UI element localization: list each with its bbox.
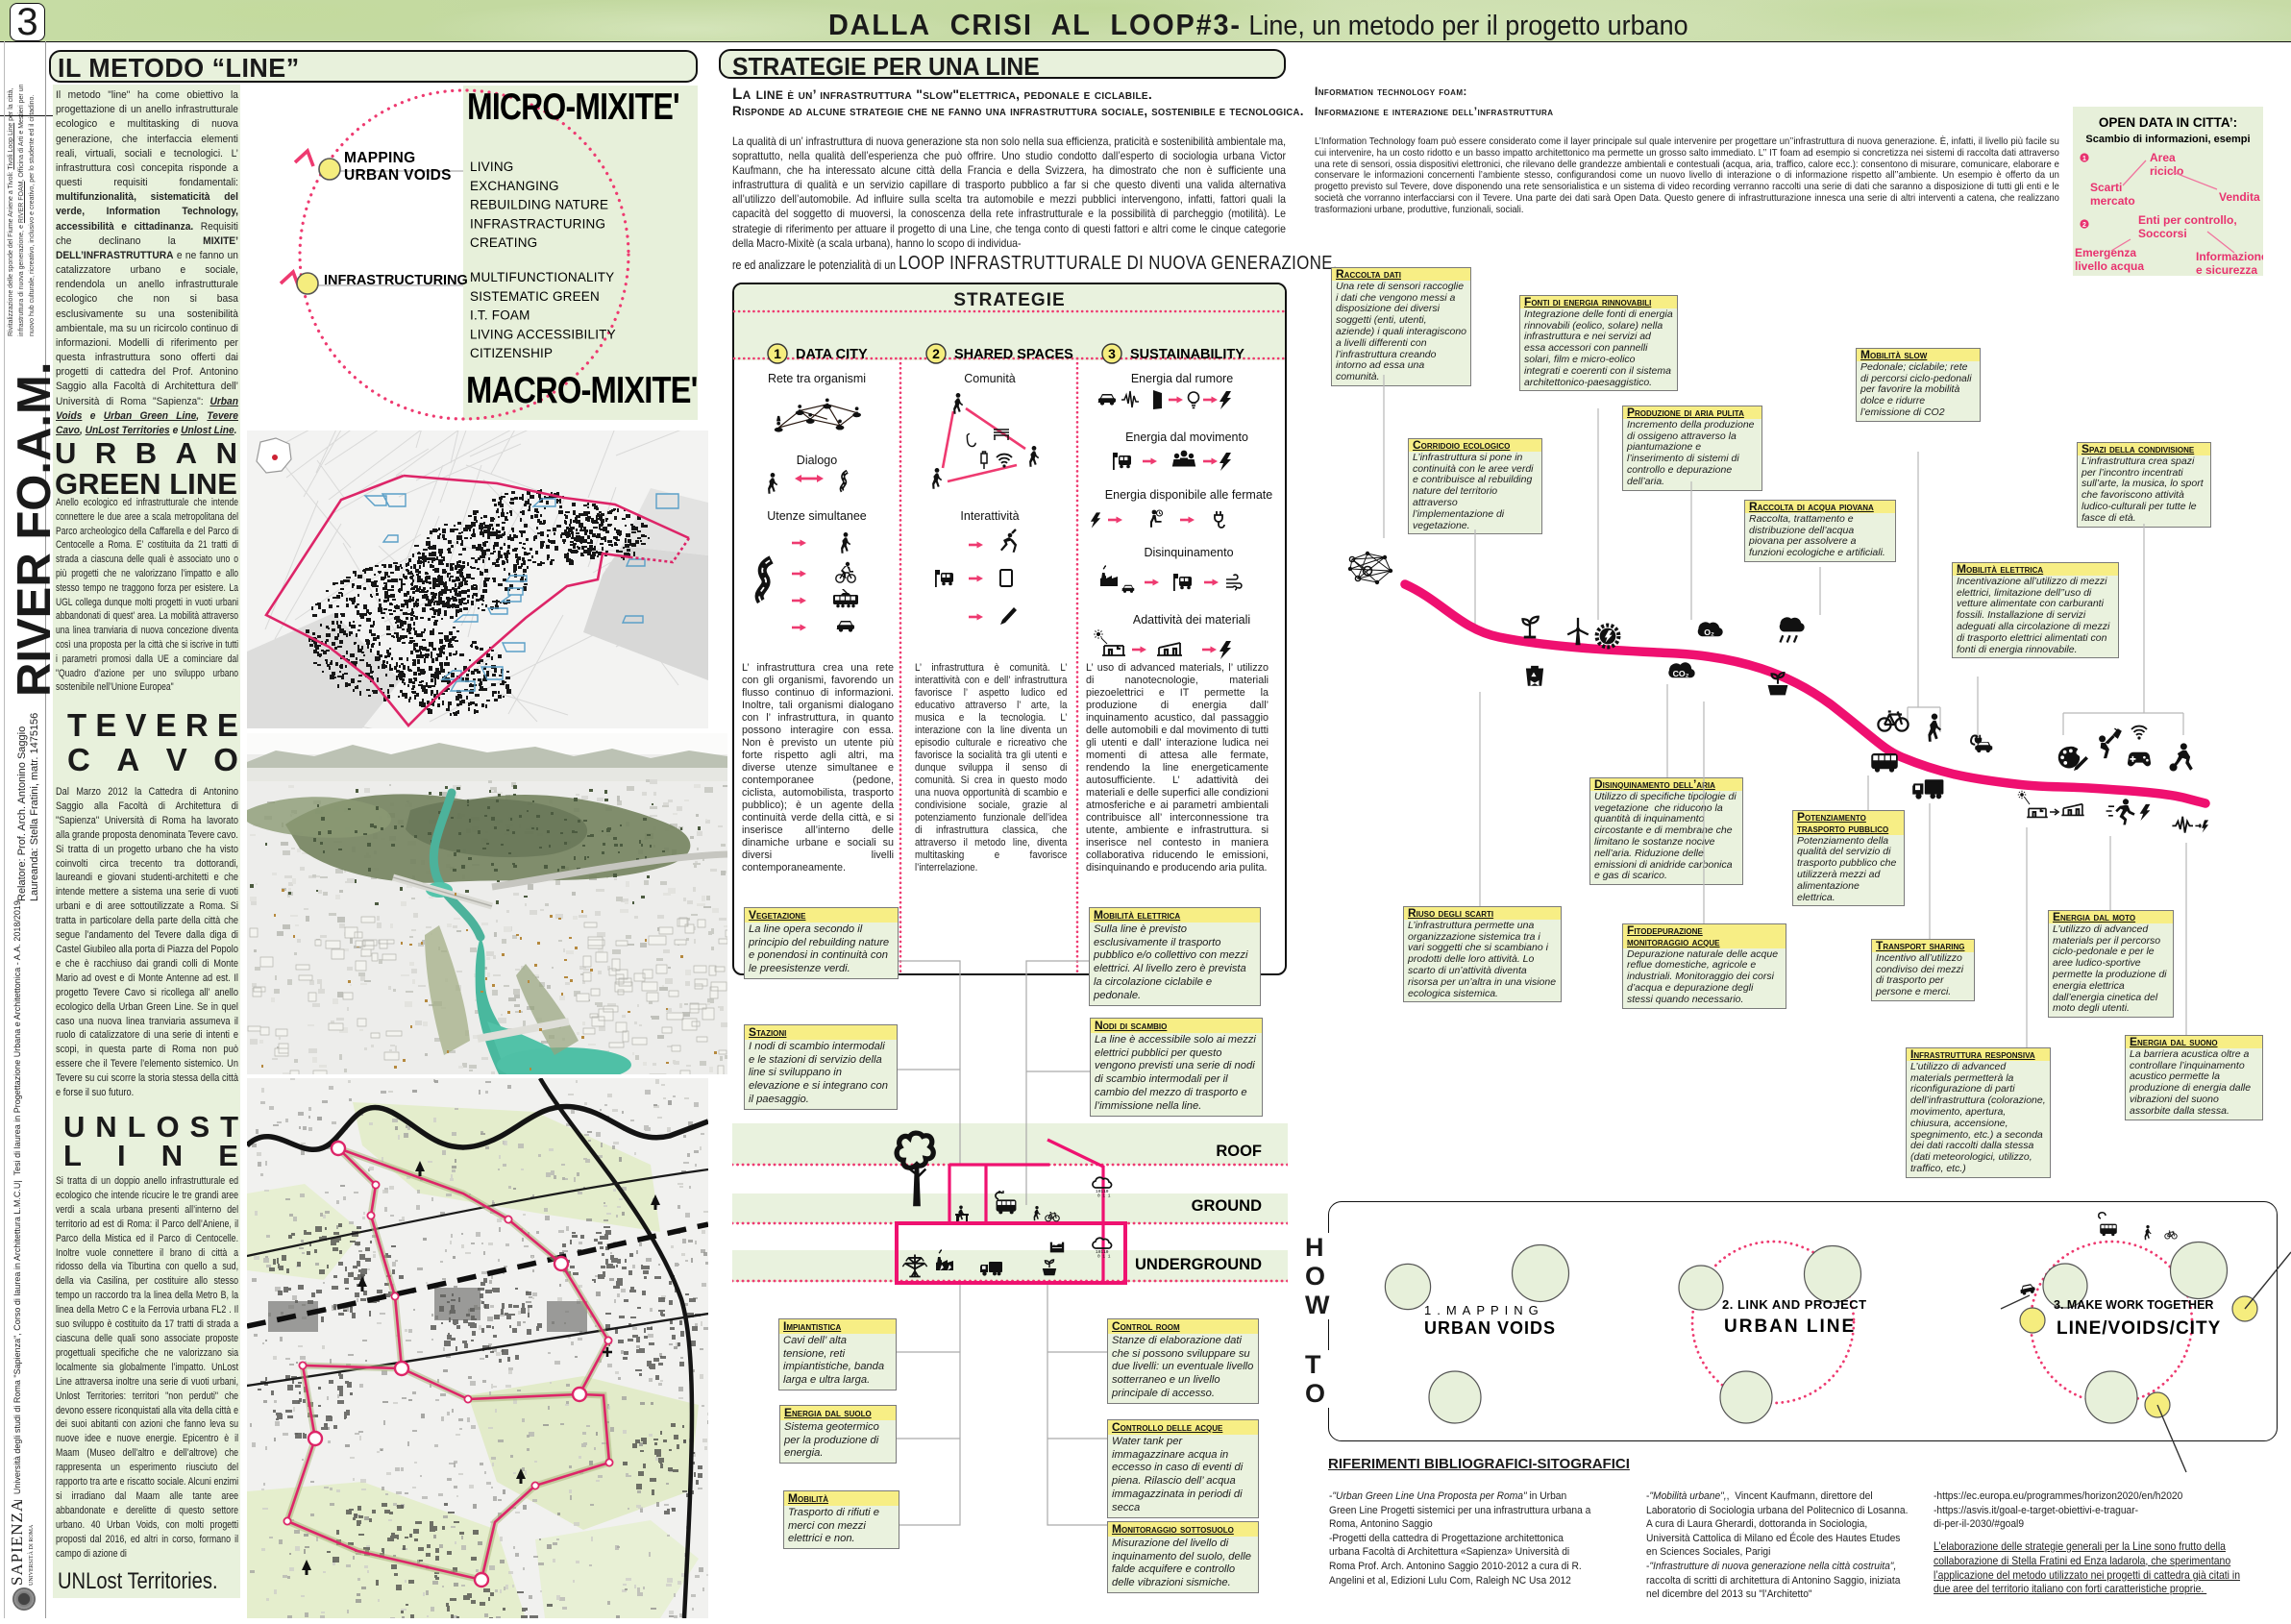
svg-text:DATA CITY: DATA CITY <box>796 347 868 362</box>
svg-text:LIVING: LIVING <box>470 160 513 174</box>
svg-text:Adattività dei materiali: Adattività dei materiali <box>1133 613 1250 627</box>
svg-text:Enti per controllo,: Enti per controllo, <box>2138 213 2237 227</box>
svg-text:Scambio di informazioni, esemp: Scambio di informazioni, esempi <box>2085 134 2250 145</box>
svg-text:INFRASTRUCTURING: INFRASTRUCTURING <box>324 273 468 288</box>
svg-text:URBAN LINE: URBAN LINE <box>1724 1316 1856 1337</box>
svg-text:Rete tra organismi: Rete tra organismi <box>768 372 866 385</box>
svg-text:UNDERGROUND: UNDERGROUND <box>1135 1256 1262 1273</box>
svg-text:OPEN DATA IN CITTA’:: OPEN DATA IN CITTA’: <box>2099 115 2237 130</box>
svg-text:SISTEMATIC GREEN: SISTEMATIC GREEN <box>470 289 600 304</box>
svg-text:URBAN VOIDS: URBAN VOIDS <box>1424 1318 1556 1338</box>
svg-text:riciclo: riciclo <box>2150 164 2183 178</box>
svg-text:Disinquinamento: Disinquinamento <box>1144 546 1233 559</box>
svg-text:MACRO-MIXITE': MACRO-MIXITE' <box>466 368 698 410</box>
svg-text:CREATING: CREATING <box>470 235 537 250</box>
svg-text:Energia dal rumore: Energia dal rumore <box>1131 372 1233 385</box>
svg-text:LIVING ACCESSIBILITY: LIVING ACCESSIBILITY <box>470 327 616 341</box>
svg-text:Comunità: Comunità <box>964 372 1016 385</box>
svg-text:1: 1 <box>2082 156 2086 162</box>
svg-text:Vendita: Vendita <box>2219 190 2260 204</box>
svg-text:MAPPING: MAPPING <box>344 150 415 166</box>
svg-text:livello acqua: livello acqua <box>2075 259 2144 273</box>
svg-text:REBUILDING NATURE: REBUILDING NATURE <box>470 198 608 212</box>
svg-text:Interattività: Interattività <box>960 509 1019 523</box>
svg-text:GROUND: GROUND <box>1192 1197 1262 1215</box>
svg-text:2. LINK AND PROJECT: 2. LINK AND PROJECT <box>1722 1297 1867 1312</box>
svg-text:Soccorsi: Soccorsi <box>2138 227 2187 240</box>
svg-text:URBAN VOIDS: URBAN VOIDS <box>344 167 452 184</box>
svg-text:EXCHANGING: EXCHANGING <box>470 179 559 193</box>
svg-text:I.T. FOAM: I.T. FOAM <box>470 308 530 323</box>
svg-text:Energia dal movimento: Energia dal movimento <box>1125 431 1248 444</box>
svg-text:Informazione: Informazione <box>2196 250 2263 263</box>
svg-text:3. MAKE WORK TOGETHER: 3. MAKE WORK TOGETHER <box>2054 1298 2213 1312</box>
svg-text:Energia disponibile alle ferma: Energia disponibile alle fermate <box>1105 488 1272 502</box>
svg-text:MULTIFUNCTIONALITY: MULTIFUNCTIONALITY <box>470 270 614 284</box>
svg-text:LINE/VOIDS/CITY: LINE/VOIDS/CITY <box>2057 1318 2221 1339</box>
svg-text:Area: Area <box>2150 151 2176 164</box>
svg-text:Scarti: Scarti <box>2090 181 2122 194</box>
svg-text:2: 2 <box>932 346 940 361</box>
svg-text:mercato: mercato <box>2090 194 2135 208</box>
svg-text:Emergenza: Emergenza <box>2075 246 2136 259</box>
svg-text:1: 1 <box>774 346 781 361</box>
svg-text:1.MAPPING: 1.MAPPING <box>1424 1303 1544 1317</box>
svg-text:2: 2 <box>2082 222 2086 229</box>
svg-text:Utenze simultanee: Utenze simultanee <box>767 509 867 523</box>
svg-text:Dialogo: Dialogo <box>797 454 837 467</box>
svg-text:CITIZENSHIP: CITIZENSHIP <box>470 346 553 360</box>
svg-text:e sicurezza: e sicurezza <box>2196 263 2257 276</box>
svg-text:INFRASTRACTURING: INFRASTRACTURING <box>470 216 605 231</box>
svg-text:MICRO-MIXITE': MICRO-MIXITE' <box>467 86 679 128</box>
svg-text:SUSTAINABILITY: SUSTAINABILITY <box>1130 347 1244 362</box>
svg-text:SHARED SPACES: SHARED SPACES <box>954 347 1073 362</box>
svg-text:3: 3 <box>1108 346 1116 361</box>
svg-text:ROOF: ROOF <box>1216 1143 1262 1160</box>
